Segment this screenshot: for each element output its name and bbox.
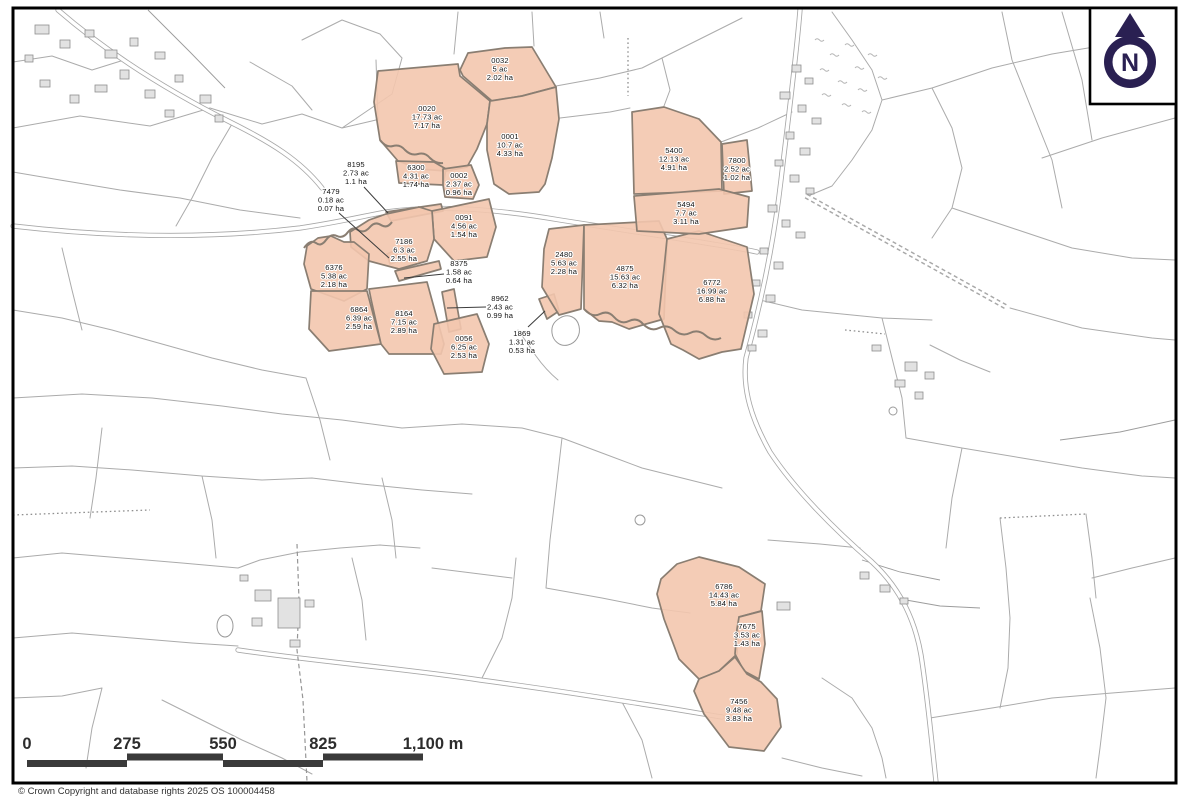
- parcel-label-8375: 83751.58 ac0.64 ha: [446, 259, 473, 285]
- scale-bar-segment: [27, 760, 127, 767]
- field-boundaries: [13, 12, 1175, 778]
- parcel-label-line: 6.88 ha: [699, 295, 726, 304]
- parcel-leader-1869: [528, 311, 545, 327]
- scale-bar-segment: [223, 760, 323, 767]
- parcel-label-line: 2.18 ha: [321, 280, 348, 289]
- parcel-label-line: 0.99 ha: [487, 311, 514, 320]
- parcel-leader-8195: [364, 187, 388, 213]
- os-parcel-map: 00325 ac2.02 ha002017.73 ac7.17 ha000110…: [0, 0, 1188, 800]
- scale-bar-segment: [323, 754, 423, 761]
- parcel-label-line: 0.64 ha: [446, 276, 473, 285]
- parcel-label-line: 1.1 ha: [345, 177, 368, 186]
- scale-bar-segment: [127, 754, 223, 761]
- vegetation-marks: [815, 39, 887, 114]
- scale-tick-label: 0: [22, 735, 31, 753]
- north-arrow: N: [1090, 8, 1176, 104]
- parcel-layer: [304, 47, 781, 751]
- parcel-label-line: 2.53 ha: [451, 351, 478, 360]
- parcel-label-line: 3.11 ha: [673, 217, 699, 226]
- parcel-label-7479: 74790.18 ac0.07 ha: [318, 187, 345, 213]
- scale-tick-label: 825: [309, 735, 337, 753]
- parcel-label-8962: 89622.43 ac0.99 ha: [487, 294, 514, 320]
- parcel-label-8195: 81952.73 ac1.1 ha: [343, 160, 369, 186]
- parcel-label-line: 3.83 ha: [726, 714, 753, 723]
- parcel-label-line: 6.32 ha: [612, 281, 639, 290]
- map-svg: 00325 ac2.02 ha002017.73 ac7.17 ha000110…: [0, 0, 1188, 800]
- parcel-label-line: 2.55 ha: [391, 254, 418, 263]
- copyright-text: © Crown Copyright and database rights 20…: [18, 786, 275, 797]
- parcel-label-line: 7.17 ha: [414, 121, 441, 130]
- parcel-label-line: 1.02 ha: [724, 173, 751, 182]
- scale-tick-label: 275: [113, 735, 141, 753]
- parcel-label-line: 0.07 ha: [318, 204, 345, 213]
- parcel-label-line: 1.74 ha: [403, 180, 430, 189]
- parcel-label-line: 0.53 ha: [509, 346, 536, 355]
- parcel-label-line: 2.59 ha: [346, 322, 373, 331]
- north-label: N: [1121, 49, 1139, 77]
- parcel-label-1869: 18691.31 ac0.53 ha: [509, 329, 536, 355]
- parcel-label-line: 5.84 ha: [711, 599, 738, 608]
- map-frame-border: [13, 8, 1176, 783]
- parcel-label-line: 1.43 ha: [734, 639, 761, 648]
- ponds: [217, 316, 897, 637]
- parcel-label-line: 2.89 ha: [391, 326, 418, 335]
- parcel-label-line: 1.54 ha: [451, 230, 478, 239]
- parcel-label-line: 4.91 ha: [661, 163, 688, 172]
- parcel-label-line: 0.96 ha: [446, 188, 473, 197]
- scale-tick-label: 550: [209, 735, 237, 753]
- parcel-label-line: 2.02 ha: [487, 73, 514, 82]
- scale-tick-label: 1,100 m: [403, 735, 464, 753]
- parcel-label-line: 4.33 ha: [497, 149, 524, 158]
- parcel-label-line: 2.28 ha: [551, 267, 578, 276]
